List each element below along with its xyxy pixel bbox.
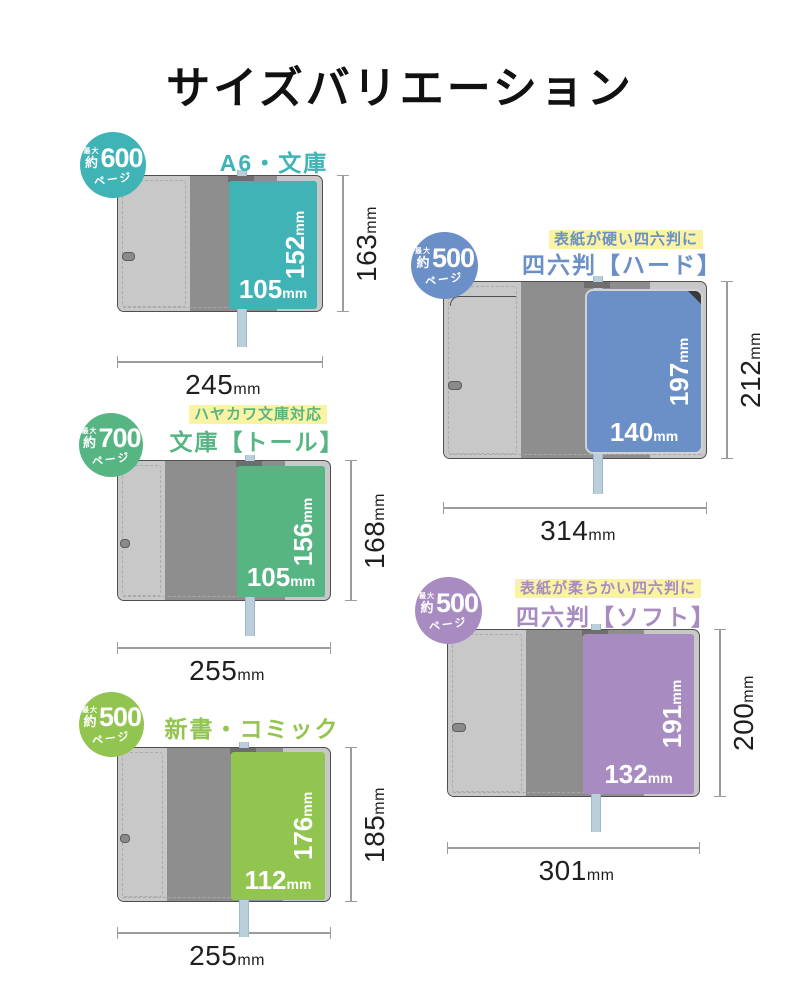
badge-pages-label: ページ xyxy=(429,617,469,633)
book-cover-illustration: 176mm 112mm xyxy=(117,747,331,902)
pen-slot xyxy=(120,834,130,843)
width-dimension-line xyxy=(443,502,707,514)
badge-approx-label: 約 xyxy=(416,256,429,269)
book-width-label: 140mm xyxy=(610,417,678,448)
left-flap xyxy=(448,630,526,796)
book-size-rect: 152mm 105mm xyxy=(229,181,317,309)
left-flap xyxy=(118,748,167,901)
badge-prefix: 最大 約 xyxy=(82,707,98,728)
badge-max-label: 最大 xyxy=(415,248,431,255)
cover-height-dimension: 163mm xyxy=(337,175,397,312)
height-dimension-line xyxy=(721,281,733,459)
size-variation-infographic: サイズバリエーション 最大 約 600 ページ A6・文庫 xyxy=(0,0,800,1000)
badge-page-count: 700 xyxy=(98,425,140,452)
badge-top-row: 最大 約 500 xyxy=(415,245,474,272)
book-cover-illustration: 152mm 105mm xyxy=(117,175,323,312)
cover-height-label: 200mm xyxy=(728,675,760,751)
book-size-rect: 156mm 105mm xyxy=(237,466,325,597)
cover-width-dimension: 314mm xyxy=(443,502,707,550)
badge-pages-label: ページ xyxy=(91,452,131,468)
cover-width-dimension: 255mm xyxy=(117,927,331,975)
book-cover-illustration: 197mm 140mm xyxy=(443,281,707,459)
book-height-label: 191mm xyxy=(657,680,688,748)
width-dimension-line xyxy=(447,842,700,854)
badge-pages-label: ページ xyxy=(92,731,132,747)
pen-slot xyxy=(448,381,462,390)
cover-height-dimension: 212mm xyxy=(721,281,781,459)
left-flap xyxy=(118,176,190,311)
book-title: 四六判【ハード】 xyxy=(522,246,722,280)
book-size-rect: 197mm 140mm xyxy=(585,289,703,454)
book-title: 四六判【ソフト】 xyxy=(516,598,716,632)
width-dimension-line xyxy=(117,927,331,939)
max-pages-badge: 最大 約 500 ページ xyxy=(79,692,144,757)
height-dimension-line xyxy=(337,175,349,312)
badge-prefix: 最大 約 xyxy=(81,428,97,449)
badge-page-count: 600 xyxy=(100,145,142,172)
book-size-rect: 176mm 112mm xyxy=(231,752,325,900)
badge-approx-label: 約 xyxy=(83,436,96,449)
book-width-label: 105mm xyxy=(239,274,307,305)
book-cover-illustration: 156mm 105mm xyxy=(117,460,331,601)
badge-approx-label: 約 xyxy=(420,601,433,614)
left-flap xyxy=(118,461,165,600)
cover-height-dimension: 168mm xyxy=(345,460,405,601)
book-width-label: 105mm xyxy=(247,562,315,593)
badge-page-count: 500 xyxy=(99,704,141,731)
badge-top-row: 最大 約 600 xyxy=(83,145,142,172)
cover-height-dimension: 200mm xyxy=(714,629,774,797)
hardcover-corner-icon xyxy=(688,291,701,304)
badge-max-label: 最大 xyxy=(83,148,99,155)
cover-height-label: 212mm xyxy=(735,332,767,408)
max-pages-badge: 最大 約 500 ページ xyxy=(411,232,478,299)
cover-height-label: 163mm xyxy=(351,206,383,282)
badge-top-row: 最大 約 500 xyxy=(419,590,478,617)
badge-max-label: 最大 xyxy=(419,593,435,600)
max-pages-badge: 最大 約 700 ページ xyxy=(79,413,143,477)
height-dimension-line xyxy=(345,460,357,601)
badge-page-count: 500 xyxy=(432,245,474,272)
badge-top-row: 最大 約 500 xyxy=(82,704,141,731)
book-width-label: 112mm xyxy=(245,865,312,896)
cover-width-dimension: 245mm xyxy=(117,356,323,404)
cover-width-label: 245mm xyxy=(185,369,261,401)
max-pages-badge: 最大 約 600 ページ xyxy=(80,132,146,198)
book-height-label: 176mm xyxy=(288,792,319,860)
book-height-label: 197mm xyxy=(664,337,695,405)
book-tagline-text: 表紙が柔らかい四六判に xyxy=(515,579,701,598)
left-flap xyxy=(444,282,521,458)
badge-max-label: 最大 xyxy=(81,428,97,435)
badge-prefix: 最大 約 xyxy=(83,148,99,169)
book-cover-illustration: 191mm 132mm xyxy=(447,629,700,797)
badge-top-row: 最大 約 700 xyxy=(81,425,140,452)
badge-max-label: 最大 xyxy=(82,707,98,714)
pen-slot xyxy=(120,539,130,548)
cover-width-label: 255mm xyxy=(189,940,265,972)
book-tagline: ハヤカワ文庫対応 xyxy=(189,403,327,424)
badge-pages-label: ページ xyxy=(93,172,133,188)
book-tagline: 表紙が柔らかい四六判に xyxy=(515,577,701,598)
cover-height-label: 168mm xyxy=(359,493,391,569)
cover-height-dimension: 185mm xyxy=(345,747,405,902)
badge-page-count: 500 xyxy=(436,590,478,617)
badge-approx-label: 約 xyxy=(83,715,96,728)
flap-pocket-line xyxy=(450,296,516,306)
height-dimension-line xyxy=(345,747,357,902)
height-dimension-line xyxy=(714,629,726,797)
ribbon-anchor xyxy=(584,282,610,288)
page-title: サイズバリエーション xyxy=(0,52,800,116)
cover-width-dimension: 301mm xyxy=(447,842,700,890)
book-height-label: 152mm xyxy=(280,211,311,279)
cover-width-label: 255mm xyxy=(189,655,265,687)
book-width-label: 132mm xyxy=(604,759,672,790)
badge-pages-label: ページ xyxy=(425,272,465,288)
book-tagline-text: ハヤカワ文庫対応 xyxy=(189,405,327,424)
badge-prefix: 最大 約 xyxy=(415,248,431,269)
book-height-label: 156mm xyxy=(288,497,319,565)
cover-width-label: 301mm xyxy=(539,855,615,887)
cover-width-label: 314mm xyxy=(540,515,616,547)
max-pages-badge: 最大 約 500 ページ xyxy=(415,577,482,644)
pen-slot xyxy=(122,252,136,261)
cover-height-label: 185mm xyxy=(359,787,391,863)
book-title: 文庫【トール】 xyxy=(170,423,345,457)
book-title: 新書・コミック xyxy=(165,710,340,744)
book-size-rect: 191mm 132mm xyxy=(583,634,694,794)
width-dimension-line xyxy=(117,642,331,654)
pen-slot xyxy=(452,723,466,732)
width-dimension-line xyxy=(117,356,323,368)
book-title: A6・文庫 xyxy=(220,144,328,178)
cover-width-dimension: 255mm xyxy=(117,642,331,690)
badge-approx-label: 約 xyxy=(85,156,98,169)
badge-prefix: 最大 約 xyxy=(419,593,435,614)
